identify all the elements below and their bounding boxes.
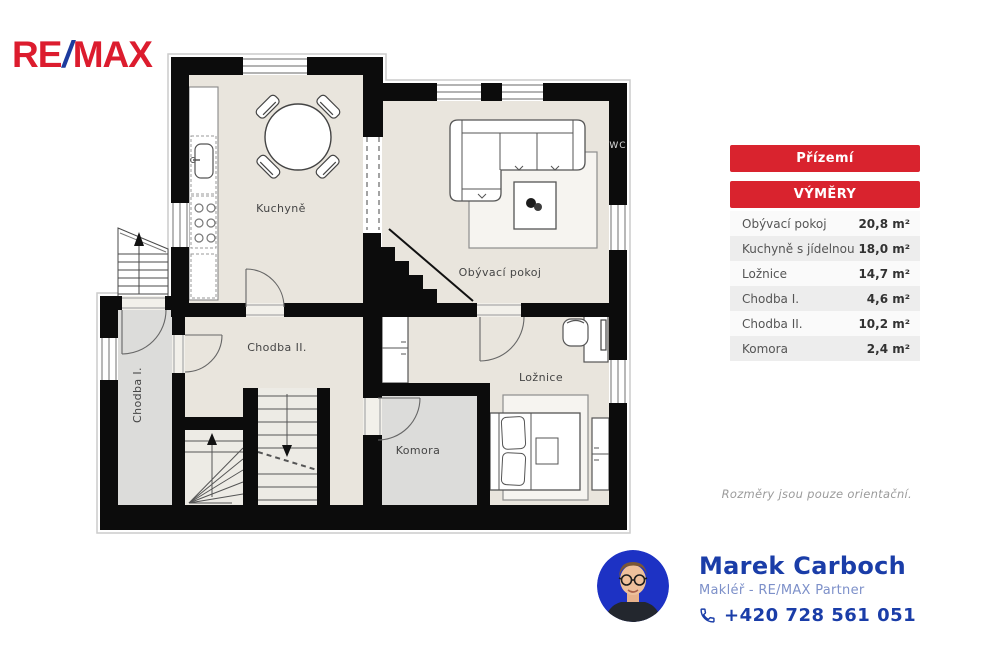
pass-through xyxy=(367,137,379,230)
room-name: Chodba I. xyxy=(742,292,799,306)
label-chodba-2: Chodba II. xyxy=(247,341,307,354)
flyer: RE/MAX xyxy=(0,0,1000,667)
room-area: 2,4 m² xyxy=(867,342,910,356)
label-wc: WC xyxy=(609,141,626,151)
areas-banner: VÝMĚRY xyxy=(730,181,920,208)
table-row: Chodba II.10,2 m² xyxy=(730,311,920,336)
agent-name: Marek Carboch xyxy=(699,552,916,580)
summary-panel: Přízemí VÝMĚRY Obývací pokoj20,8 m² Kuch… xyxy=(730,145,920,361)
room-name: Obývací pokoj xyxy=(742,217,827,231)
table-row: Obývací pokoj20,8 m² xyxy=(730,211,920,236)
window-living-top-1 xyxy=(437,83,481,101)
label-kuchyne: Kuchyně xyxy=(256,202,306,215)
room-name: Komora xyxy=(742,342,788,356)
room-name: Kuchyně s jídelnou xyxy=(742,242,855,256)
table-row: Kuchyně s jídelnou18,0 m² xyxy=(730,236,920,261)
agent-role: Makléř - RE/MAX Partner xyxy=(699,583,916,598)
table-row: Komora2,4 m² xyxy=(730,336,920,361)
window-chodba1-left xyxy=(100,338,118,380)
label-loznice: Ložnice xyxy=(519,371,563,384)
disclaimer-note: Rozměry jsou pouze orientační. xyxy=(610,487,912,501)
label-obyvaci-pokoj: Obývací pokoj xyxy=(459,266,542,279)
floor-banner: Přízemí xyxy=(730,145,920,172)
window-kitchen-left xyxy=(171,203,189,247)
room-name: Chodba II. xyxy=(742,317,803,331)
room-area: 14,7 m² xyxy=(858,267,910,281)
window-bedroom-right xyxy=(609,360,627,403)
room-area: 4,6 m² xyxy=(867,292,910,306)
window-kitchen-top xyxy=(243,57,307,75)
room-area: 18,0 m² xyxy=(858,242,910,256)
dining-table xyxy=(265,104,331,170)
table-row: Chodba I.4,6 m² xyxy=(730,286,920,311)
phone-number[interactable]: +420 728 561 051 xyxy=(724,605,916,626)
agent-photo xyxy=(597,550,669,622)
label-komora: Komora xyxy=(396,444,441,457)
entry-stairs xyxy=(118,228,168,302)
desk-chair xyxy=(563,319,588,346)
sink xyxy=(195,144,213,178)
label-chodba-1: Chodba I. xyxy=(131,367,144,423)
phone-icon xyxy=(699,607,716,624)
room-area: 10,2 m² xyxy=(858,317,910,331)
table-row: Ložnice14,7 m² xyxy=(730,261,920,286)
room-area: 20,8 m² xyxy=(858,217,910,231)
agent-phone[interactable]: +420 728 561 051 xyxy=(699,605,916,626)
room-name: Ložnice xyxy=(742,267,787,281)
agent-card: Marek Carboch Makléř - RE/MAX Partner +4… xyxy=(597,550,916,626)
agent-avatar xyxy=(597,550,669,622)
areas-table: Obývací pokoj20,8 m² Kuchyně s jídelnou1… xyxy=(730,211,920,361)
window-living-right xyxy=(609,205,627,250)
agent-info: Marek Carboch Makléř - RE/MAX Partner +4… xyxy=(699,550,916,626)
living-room-furniture xyxy=(450,120,597,248)
window-living-top-2 xyxy=(502,83,543,101)
